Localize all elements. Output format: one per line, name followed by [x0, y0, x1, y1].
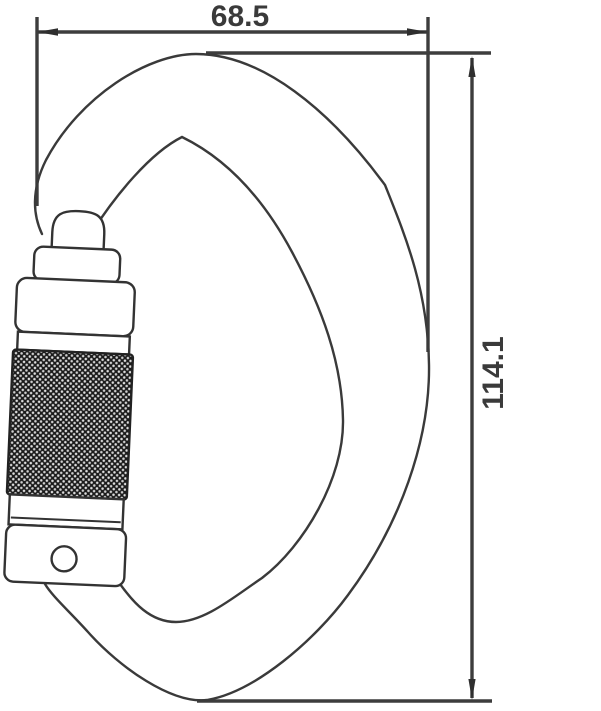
drawing-canvas: 68.5 114.1 [0, 0, 601, 711]
arrow-down-icon [468, 679, 475, 700]
locking-gate-assembly [3, 209, 140, 587]
arrow-right-icon [407, 28, 428, 35]
height-dimension-label: 114.1 [477, 336, 510, 409]
vertical-dimension: 114.1 [197, 53, 510, 701]
carabiner-technical-drawing: 68.5 114.1 [0, 0, 601, 711]
arrow-up-icon [468, 56, 475, 77]
width-dimension-label: 68.5 [211, 0, 269, 33]
gate-knurled-sleeve [7, 349, 133, 499]
arrow-left-icon [37, 28, 58, 35]
gate-rivet-hole [51, 546, 77, 572]
gate-upper-sleeve [15, 278, 135, 337]
